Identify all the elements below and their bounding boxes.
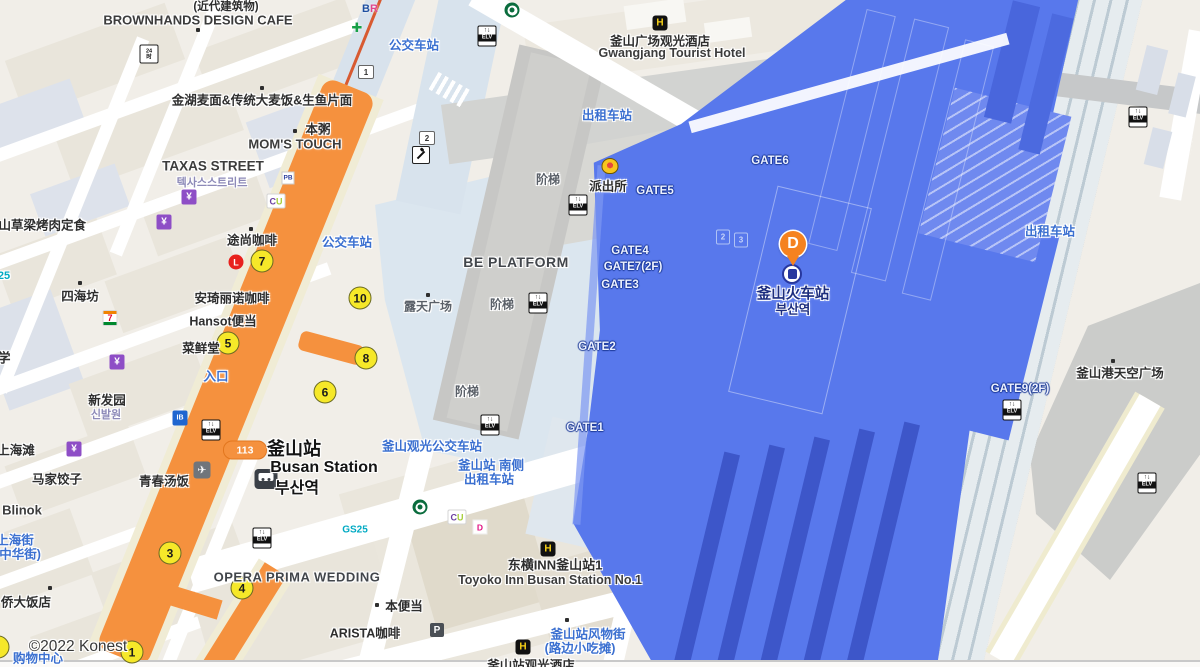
police-icon — [602, 158, 619, 174]
elv-icon: ↑↓ELV — [1003, 400, 1022, 421]
currency-exchange-icon: ¥ — [157, 215, 172, 230]
marker-tail — [787, 256, 799, 266]
label-be-platform: BE PLATFORM — [463, 254, 569, 270]
label-bon-dosirak: 本便当 — [385, 596, 423, 615]
exit-partial[interactable] — [0, 636, 10, 659]
label-sihaifang: 四海坊 — [61, 286, 99, 305]
bank-icon: IB — [173, 411, 188, 426]
label-gate2: GATE2 — [578, 341, 616, 353]
label-toyoko-en: Toyoko Inn Busan Station No.1 — [458, 573, 642, 587]
starbucks-icon — [505, 3, 520, 18]
label-busan-station-cn: 釜山站 — [267, 435, 321, 461]
label-shanghai-st2: (中华街) — [0, 544, 41, 563]
numbox-icon: 2 — [419, 131, 435, 145]
elv-icon: ↑↓ELV — [569, 195, 588, 216]
label-gs25-partial: 25 — [0, 270, 10, 282]
label-open-plaza: 露天广场 — [404, 298, 452, 315]
label-bus-stop-mid: 公交车站 — [322, 232, 372, 251]
hotel-icon: H — [516, 640, 531, 655]
label-school-partial: 学 — [0, 348, 11, 367]
label-gate1: GATE1 — [566, 422, 604, 434]
label-toyoko-cn: 东横INN釜山站1 — [508, 555, 603, 574]
label-sky-plaza: 釜山港天空广场 — [1076, 363, 1164, 382]
poi-dot — [375, 603, 379, 607]
label-majia-dumpling: 马家饺子 — [32, 469, 82, 488]
elv-icon: ↑↓ELV — [529, 293, 548, 314]
label-busan-station-kr: 부산역 — [275, 474, 319, 498]
label-qiaoda-hotel: 侨大饭店 — [1, 592, 51, 611]
poi-dot — [48, 586, 52, 590]
exit-3[interactable]: 3 — [159, 542, 182, 565]
paris-baguette-icon: PB — [281, 172, 294, 185]
label-bus-stop-top: 公交车站 — [389, 35, 439, 54]
lotteria-icon: L — [229, 255, 244, 270]
label-opera-wedding: OPERA PRIMA WEDDING — [214, 570, 381, 585]
label-gate6: GATE6 — [751, 155, 789, 167]
label-stairs-1: 阶梯 — [536, 171, 560, 188]
label-stairs-3: 阶梯 — [455, 383, 479, 400]
elv-icon: ↑↓ELV — [1129, 107, 1148, 128]
poi-dot — [426, 293, 430, 297]
label-brownhands: BROWNHANDS DESIGN CAFE — [103, 13, 292, 28]
currency-exchange-icon: ¥ — [67, 442, 82, 457]
label-gate4: GATE4 — [611, 245, 649, 257]
baskin-robbins-icon: BR — [362, 3, 378, 15]
poi-dot — [293, 129, 297, 133]
label-taxi-stand-right: 出租车站 — [1025, 221, 1075, 240]
route-badge-113: 113 — [223, 441, 267, 460]
airport-bus-icon: ✈ — [194, 462, 211, 479]
label-caoliang-bbq: 釜山草梁烤肉定食 — [0, 215, 86, 234]
label-bonjuk: 本粥 — [305, 119, 330, 138]
label-caixiantang: 菜鲜堂 — [182, 338, 220, 357]
label-hansot: Hansot便当 — [189, 311, 256, 330]
currency-exchange-icon: ¥ — [182, 190, 197, 205]
numbox-icon: 1 — [358, 65, 374, 79]
exit-8[interactable]: 8 — [355, 347, 378, 370]
label-gate5: GATE5 — [636, 185, 674, 197]
open24-icon: 24时 — [140, 45, 159, 64]
label-gate7-2f: GATE7(2F) — [604, 261, 663, 273]
poi-dot — [196, 28, 200, 32]
currency-exchange-icon: ¥ — [110, 355, 125, 370]
map-edge — [0, 662, 1200, 667]
label-south-hotel: 釜山站观光酒店 — [487, 655, 575, 667]
label-shanghaitan: 上海滩 — [0, 440, 35, 459]
label-police-box: 派出所 — [589, 176, 627, 195]
elv-icon: ↑↓ELV — [481, 415, 500, 436]
seven-eleven-icon: 7 — [103, 310, 118, 326]
marker-label: D — [780, 231, 806, 257]
map-marker-d[interactable]: D — [779, 231, 807, 268]
map-attribution: ©2022 Konest — [29, 638, 127, 656]
cu-icon: CU — [267, 194, 286, 209]
label-tour-bus-stop: 釜山观光公交车站 — [382, 436, 482, 455]
label-taxas-street-kr: 텍사스스트리트 — [177, 174, 248, 190]
parking-icon: P — [430, 623, 444, 637]
label-busan-rail-kr: 부산역 — [776, 299, 811, 318]
starbucks-icon — [413, 500, 428, 515]
label-stairs-2: 阶梯 — [490, 296, 514, 313]
label-moms-touch: MOM'S TOUCH — [248, 137, 341, 152]
label-taxi-stand-top: 出租车站 — [582, 105, 632, 124]
escalator-icon — [412, 146, 430, 164]
label-taxas-street: TAXAS STREET — [162, 159, 264, 174]
exit-6[interactable]: 6 — [314, 381, 337, 404]
elv-icon: ↑↓ELV — [202, 420, 221, 441]
elv-icon: ↑↓ELV — [253, 528, 272, 549]
label-blinok: Blinok — [2, 503, 42, 518]
exit-10[interactable]: 10 — [349, 287, 372, 310]
label-jinhu-noodle: 金湖麦面&传统大麦饭&生鱼片面 — [172, 90, 353, 109]
label-angelinus: 安琦丽诺咖啡 — [194, 288, 269, 307]
hotel-icon: H — [653, 16, 668, 31]
elv-icon: ↑↓ELV — [1138, 473, 1157, 494]
exit-7[interactable]: 7 — [251, 250, 274, 273]
elv-icon: ↑↓ELV — [478, 26, 497, 47]
label-gate3: GATE3 — [601, 279, 639, 291]
platform-box-icon: 2 — [716, 230, 730, 245]
label-xinfayuan-kr: 신발원 — [91, 406, 121, 422]
platform-box-icon: 3 — [734, 233, 748, 248]
label-qingchun-soup: 青春汤饭 — [139, 471, 189, 490]
label-entrance: 入口 — [203, 366, 228, 385]
gs25-icon: GS25 — [342, 525, 368, 536]
map-canvas[interactable]: (近代建筑物)BROWNHANDS DESIGN CAFE金湖麦面&传统大麦饭&… — [0, 0, 1200, 667]
poi-dot — [78, 281, 82, 285]
dunkin-icon: D — [473, 520, 488, 535]
label-gwangjang-en: Gwangjang Tourist Hotel — [599, 46, 746, 60]
label-gate9-2f: GATE9(2F) — [991, 383, 1050, 395]
pharmacy-cross-icon: ✚ — [352, 20, 363, 36]
label-south-side-2: 出租车站 — [464, 469, 514, 488]
label-arista-cafe: ARISTA咖啡 — [330, 623, 401, 642]
poi-dot — [565, 618, 569, 622]
label-tous-cafe: 途尚咖啡 — [227, 230, 277, 249]
cu-icon: CU — [448, 510, 467, 525]
